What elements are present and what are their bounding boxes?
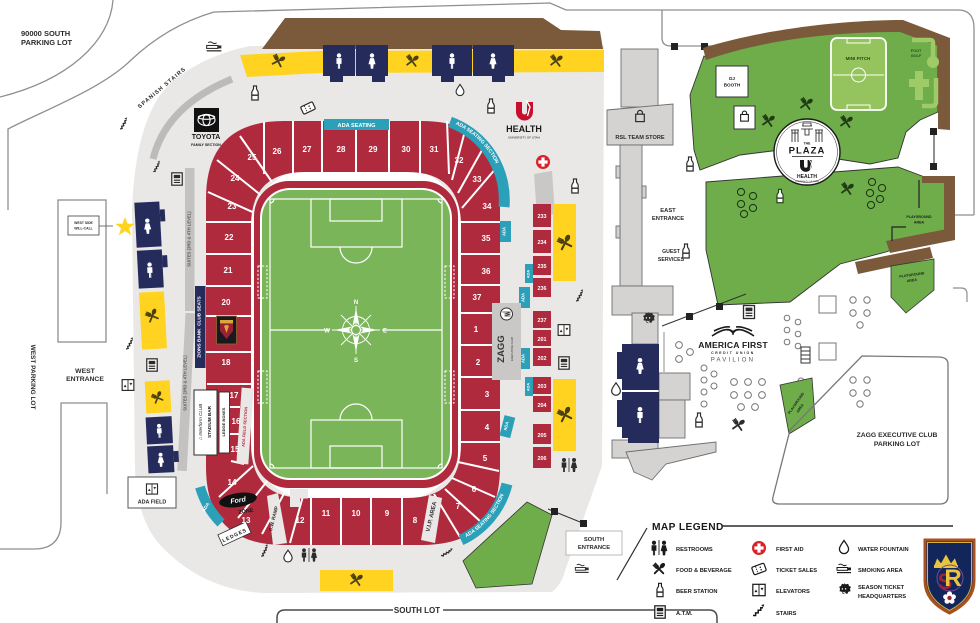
svg-text:234: 234 [538, 240, 547, 246]
svg-text:22: 22 [225, 233, 234, 242]
svg-text:14: 14 [228, 478, 237, 487]
svg-text:RSL TEAM STORE: RSL TEAM STORE [615, 135, 664, 141]
svg-text:36: 36 [482, 267, 491, 276]
svg-text:WEST SIDE: WEST SIDE [74, 221, 93, 225]
svg-text:EAST: EAST [660, 208, 676, 214]
svg-text:FOOT: FOOT [911, 49, 922, 53]
svg-text:PLAYGROUND: PLAYGROUND [906, 215, 932, 219]
svg-text:N: N [354, 300, 358, 306]
svg-text:7: 7 [456, 502, 461, 511]
svg-text:ADA: ADA [527, 270, 531, 278]
svg-text:LEDGE BOXES: LEDGE BOXES [221, 407, 226, 436]
svg-text:ADA: ADA [502, 227, 507, 236]
svg-text:WEST: WEST [75, 368, 95, 375]
svg-text:34: 34 [483, 202, 492, 211]
svg-text:33: 33 [473, 175, 482, 184]
svg-text:202: 202 [538, 356, 547, 362]
svg-text:11: 11 [322, 509, 331, 518]
svg-text:SMOKING AREA: SMOKING AREA [858, 568, 903, 574]
svg-text:UNIVERSITY OF UTAH: UNIVERSITY OF UTAH [795, 180, 819, 183]
svg-text:SUITES (3RD & 4TH LEVEL): SUITES (3RD & 4TH LEVEL) [187, 211, 192, 267]
svg-text:TOYOTA: TOYOTA [192, 134, 221, 141]
svg-text:S: S [354, 358, 358, 364]
svg-text:PAVILION: PAVILION [711, 358, 755, 364]
svg-text:233: 233 [538, 214, 547, 220]
svg-text:FOOD & BEVERAGE: FOOD & BEVERAGE [676, 568, 732, 574]
svg-text:28: 28 [337, 145, 346, 154]
svg-text:4: 4 [485, 423, 490, 432]
svg-text:12: 12 [296, 516, 305, 525]
svg-text:UNIVERSITY OF UTAH: UNIVERSITY OF UTAH [508, 136, 540, 140]
svg-text:2: 2 [476, 358, 481, 367]
svg-text:AREA: AREA [914, 221, 925, 225]
svg-text:PARKING LOT: PARKING LOT [21, 38, 73, 47]
svg-text:ZIONS BANK CLUB SEATS: ZIONS BANK CLUB SEATS [197, 296, 202, 357]
svg-text:STADIUM BAR: STADIUM BAR [207, 405, 212, 437]
svg-text:8: 8 [413, 516, 418, 525]
svg-text:236: 236 [538, 286, 547, 292]
svg-text:SUITES (3RD & 4TH LEVEL): SUITES (3RD & 4TH LEVEL) [183, 355, 188, 411]
svg-text:HEALTH: HEALTH [797, 174, 817, 180]
svg-text:WILL-CALL: WILL-CALL [74, 227, 92, 231]
svg-text:17: 17 [230, 391, 239, 400]
svg-text:27: 27 [303, 145, 312, 154]
svg-text:HEADQUARTERS: HEADQUARTERS [858, 594, 906, 600]
svg-text:SOUTH LOT: SOUTH LOT [394, 606, 440, 615]
svg-text:1: 1 [474, 325, 479, 334]
svg-text:13: 13 [242, 516, 251, 525]
svg-text:ELEVATORS: ELEVATORS [776, 589, 810, 595]
svg-text:35: 35 [482, 234, 491, 243]
svg-text:201: 201 [538, 337, 547, 343]
svg-text:235: 235 [538, 264, 547, 270]
svg-text:6: 6 [472, 485, 477, 494]
svg-text:CREDIT UNION: CREDIT UNION [711, 351, 755, 355]
svg-text:9: 9 [385, 509, 390, 518]
svg-text:WATER FOUNTAIN: WATER FOUNTAIN [858, 547, 909, 553]
svg-text:WEST PARKING LOT: WEST PARKING LOT [29, 345, 36, 410]
svg-text:ADA FIELD: ADA FIELD [138, 500, 167, 506]
svg-text:ENTRANCE: ENTRANCE [652, 216, 684, 222]
svg-text:237: 237 [538, 318, 547, 324]
svg-text:26: 26 [273, 147, 282, 156]
svg-text:16: 16 [232, 417, 241, 426]
svg-text:ADA: ADA [527, 383, 531, 391]
svg-text:EXECUTIVE CLUB: EXECUTIVE CLUB [510, 337, 514, 361]
svg-text:203: 203 [538, 384, 547, 390]
svg-text:HEALTH: HEALTH [506, 124, 542, 134]
svg-text:DJ: DJ [729, 76, 735, 81]
svg-text:204: 204 [538, 403, 547, 409]
svg-text:205: 205 [538, 433, 547, 439]
svg-text:W: W [324, 329, 330, 335]
svg-text:ENTRANCE: ENTRANCE [66, 376, 104, 383]
svg-text:10: 10 [352, 509, 361, 518]
svg-text:PLAZA: PLAZA [789, 146, 826, 157]
svg-text:GOLF: GOLF [911, 54, 922, 58]
svg-text:BOOTH: BOOTH [724, 83, 741, 88]
svg-text:206: 206 [538, 456, 547, 462]
svg-text:MINI PITCH: MINI PITCH [846, 56, 871, 61]
svg-text:23: 23 [228, 202, 237, 211]
svg-text:SERVICES: SERVICES [658, 257, 685, 263]
svg-text:SOUTH: SOUTH [584, 537, 604, 543]
svg-text:ADA: ADA [521, 293, 526, 302]
svg-text:3: 3 [485, 390, 490, 399]
svg-text:BEER STATION: BEER STATION [676, 589, 718, 595]
svg-text:E: E [383, 329, 387, 335]
svg-text:32: 32 [455, 156, 464, 165]
svg-text:5: 5 [483, 454, 488, 463]
svg-text:20: 20 [222, 298, 231, 307]
svg-text:TICKET SALES: TICKET SALES [776, 568, 817, 574]
svg-text:37: 37 [473, 293, 482, 302]
svg-text:25: 25 [248, 153, 257, 162]
svg-text:ENTRANCE: ENTRANCE [578, 545, 610, 551]
svg-text:SEASON TICKET: SEASON TICKET [858, 585, 905, 591]
svg-text:ZAGG: ZAGG [496, 335, 507, 362]
svg-text:A.T.M.: A.T.M. [676, 611, 693, 617]
svg-text:90000 SOUTH: 90000 SOUTH [21, 29, 70, 38]
svg-text:RESTROOMS: RESTROOMS [676, 547, 713, 553]
svg-text:PARKING LOT: PARKING LOT [874, 441, 921, 448]
svg-text:FIRST AID: FIRST AID [776, 547, 804, 553]
svg-text:29: 29 [369, 145, 378, 154]
svg-text:21: 21 [224, 266, 233, 275]
svg-text:GUEST: GUEST [662, 249, 681, 255]
svg-text:30: 30 [402, 145, 411, 154]
svg-text:ZAGG EXECUTIVE CLUB: ZAGG EXECUTIVE CLUB [857, 432, 938, 439]
svg-text:18: 18 [222, 358, 231, 367]
svg-text:ADA SEATING: ADA SEATING [338, 123, 376, 129]
svg-text:15: 15 [231, 445, 240, 454]
svg-text:ADA: ADA [521, 354, 526, 363]
svg-text:R: R [944, 565, 961, 592]
svg-text:31: 31 [430, 145, 439, 154]
svg-text:STAIRS: STAIRS [776, 611, 797, 617]
svg-text:24: 24 [231, 174, 240, 183]
svg-text:FAMILY SECTION: FAMILY SECTION [191, 143, 221, 147]
svg-text:MAP LEGEND: MAP LEGEND [652, 522, 724, 533]
svg-text:AMERICA FIRST: AMERICA FIRST [698, 340, 768, 350]
svg-text:♫ Interform CLUB: ♫ Interform CLUB [198, 404, 203, 441]
